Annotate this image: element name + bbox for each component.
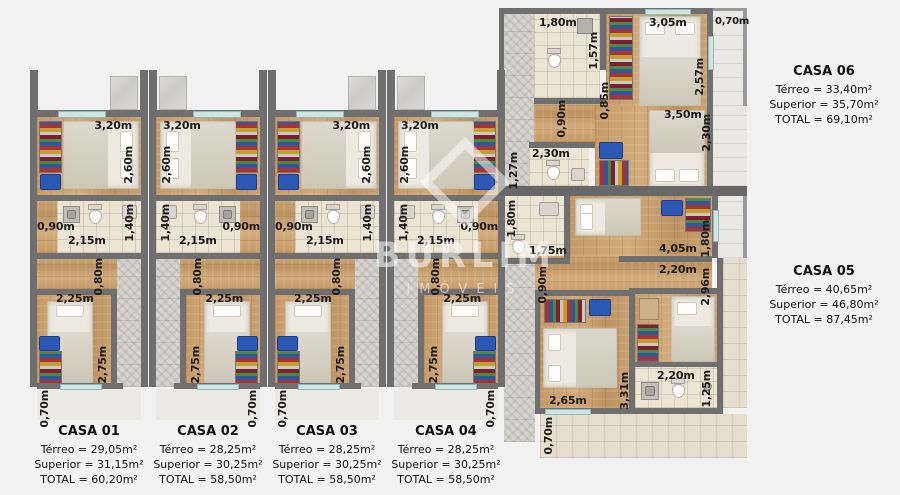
pillow xyxy=(677,302,697,315)
porch-floor xyxy=(394,389,498,420)
wardrobe xyxy=(39,351,62,385)
toilet xyxy=(326,204,340,224)
dim-bath-width: 2,15m xyxy=(306,234,344,247)
balcony-rail xyxy=(713,8,747,11)
casa-05-terreo: Térreo = 40,65m² xyxy=(750,282,898,297)
unit-superior: Superior = 30,25m² xyxy=(377,457,515,472)
dim-bedroom-depth: 2,60m xyxy=(398,146,411,184)
toilet xyxy=(193,204,207,224)
dim-bath-width: 2,15m xyxy=(68,234,106,247)
dim-hall-width: 0,80m xyxy=(330,258,343,296)
dim-bedroom1-depth: 2,57m xyxy=(693,58,706,96)
casa-06-terreo: Térreo = 33,40m² xyxy=(750,82,898,97)
unit-info: CASA 02 Térreo = 28,25m² Superior = 30,2… xyxy=(139,424,277,487)
toilet xyxy=(546,160,560,180)
wardrobe xyxy=(277,121,300,173)
dim-porch-depth: 0,70m xyxy=(484,390,497,428)
dim-bedroom2-width: 2,25m xyxy=(443,292,481,305)
wall xyxy=(37,253,141,259)
dim-bath-depth: 1,40m xyxy=(361,204,374,242)
wall xyxy=(349,289,355,387)
wardrobe xyxy=(544,299,586,323)
wall xyxy=(149,108,156,387)
casa-05-plan: 1,80m 1,75m 0,90m 4,05m 1,80m 2,20m 2,96… xyxy=(499,196,747,458)
dim-bath1-depth: 1,57m xyxy=(587,32,600,70)
wall xyxy=(499,186,747,196)
dim-hall-depth: 0,85m xyxy=(598,82,611,120)
dim-bedroom2-width: 3,50m xyxy=(664,108,702,121)
balcony-slab xyxy=(159,76,187,110)
pillow xyxy=(451,305,479,317)
window xyxy=(435,384,477,390)
exterior-paving xyxy=(117,259,141,387)
dim-bath-depth: 1,40m xyxy=(123,204,136,242)
unit-terreo: Térreo = 28,25m² xyxy=(258,442,396,457)
dim-bedroom-width: 3,20m xyxy=(332,119,370,132)
wall xyxy=(535,290,540,414)
pillow xyxy=(294,305,322,317)
unit-superior: Superior = 30,25m² xyxy=(258,457,396,472)
wall xyxy=(499,8,504,186)
unit-name: CASA 02 xyxy=(139,424,277,439)
dim-bedroom2-depth: 2,75m xyxy=(427,346,440,384)
casa-06-info: CASA 06 Térreo = 33,40m² Superior = 35,7… xyxy=(750,64,898,127)
dim-bedroom-width: 3,20m xyxy=(401,119,439,132)
exterior-paving xyxy=(355,259,379,387)
wall xyxy=(387,108,394,387)
terrace-tiles xyxy=(540,414,747,458)
dim-side-depth: 2,96m xyxy=(699,268,712,306)
unit-info: CASA 04 Térreo = 28,25m² Superior = 30,2… xyxy=(377,424,515,487)
desk xyxy=(639,298,659,320)
dim-entry-width: 0,90m xyxy=(37,220,75,233)
wall xyxy=(499,196,504,311)
dim-bath-depth: 1,40m xyxy=(397,204,410,242)
dim-hall-width: 0,80m xyxy=(92,258,105,296)
dim-bath-depth: 1,40m xyxy=(159,204,172,242)
wall xyxy=(275,195,379,201)
window xyxy=(197,384,239,390)
dresser xyxy=(474,174,495,190)
dim-bath1-width: 1,80m xyxy=(539,16,577,29)
unit-total: TOTAL = 58,50m² xyxy=(258,472,396,487)
dim-entry-width: 0,90m xyxy=(460,220,498,233)
unit-info: CASA 03 Térreo = 28,25m² Superior = 30,2… xyxy=(258,424,396,487)
window xyxy=(58,111,106,118)
dim-bath2-depth: 1,27m xyxy=(507,152,520,190)
unit-plan: 3,20m 2,60m 0,90m 1,40m 2,15m 0,80m xyxy=(387,70,505,420)
dim-bath2-depth: 1,25m xyxy=(700,370,713,408)
unit-total: TOTAL = 60,20m² xyxy=(20,472,158,487)
dresser xyxy=(475,336,496,351)
window xyxy=(298,384,340,390)
exterior-paving xyxy=(394,259,418,387)
dim-bath-width: 2,15m xyxy=(417,234,455,247)
dim-bedroom2-depth: 2,75m xyxy=(96,346,109,384)
dim-porch-depth: 0,70m xyxy=(38,390,51,428)
unit-plan: 3,20m 2,60m 0,90m 1,40m 2,15m 0,80m xyxy=(149,70,267,420)
wardrobe xyxy=(473,351,496,385)
wall xyxy=(111,289,117,387)
dim-bedroom-width: 3,20m xyxy=(94,119,132,132)
dim-balcony-width: 0,70m xyxy=(715,16,749,27)
wall xyxy=(418,289,424,387)
pillow xyxy=(655,169,675,182)
pillow xyxy=(213,305,241,317)
wall xyxy=(156,195,260,201)
dresser xyxy=(599,142,623,159)
wall xyxy=(268,108,275,387)
pillow xyxy=(679,169,699,182)
dim-hall-width: 0,80m xyxy=(429,258,442,296)
casa-05-info: CASA 05 Térreo = 40,65m² Superior = 46,8… xyxy=(750,264,898,327)
window xyxy=(296,111,344,118)
wardrobe xyxy=(235,351,258,385)
wall xyxy=(37,195,141,201)
blanket xyxy=(576,329,616,387)
wardrobe xyxy=(39,121,62,173)
casa-06-plan: 1,80m 1,57m 0,85m 0,90m 2,30m 1,27m 3,05… xyxy=(499,8,747,186)
casa-04-plan-group: 3,20m 2,60m 0,90m 1,40m 2,15m 0,80m xyxy=(387,70,505,470)
porch-floor xyxy=(156,389,260,420)
dim-entry-width: 0,90m xyxy=(222,220,260,233)
dim-bedroom-depth: 2,60m xyxy=(122,146,135,184)
pillow xyxy=(548,334,561,351)
wall xyxy=(717,258,723,408)
dim-bedroom2-depth: 2,75m xyxy=(334,346,347,384)
toilet xyxy=(431,204,445,224)
floorplan-canvas: 3,20m 2,60m 0,90m 1,40m 2,15m 0,80m xyxy=(0,0,900,495)
wardrobe xyxy=(235,121,258,173)
casa-05-total: TOTAL = 87,45m² xyxy=(750,312,898,327)
unit-plan: 3,20m 2,60m 0,90m 1,40m 2,15m 0,80m xyxy=(30,70,148,420)
dim-bath-width: 2,15m xyxy=(179,234,217,247)
unit-name: CASA 04 xyxy=(377,424,515,439)
dim-bedroom1-width: 3,05m xyxy=(649,16,687,29)
dim-bedroom2-depth: 3,31m xyxy=(618,372,631,410)
dim-bedroom-depth: 2,60m xyxy=(360,146,373,184)
wall xyxy=(30,108,37,387)
terrace-tiles xyxy=(723,258,747,408)
wardrobe xyxy=(599,160,629,186)
exterior-paving xyxy=(156,259,180,387)
wall xyxy=(180,289,186,387)
unit-total: TOTAL = 58,50m² xyxy=(377,472,515,487)
dresser xyxy=(39,336,60,351)
dresser xyxy=(40,174,61,190)
dresser xyxy=(589,299,611,316)
dim-porch-depth: 0,70m xyxy=(246,390,259,428)
wall xyxy=(141,108,148,387)
porch-floor xyxy=(37,389,141,420)
casa-06-name: CASA 06 xyxy=(750,64,898,79)
dim-hall-depth: 0,90m xyxy=(536,266,549,304)
dim-bedroom2-width: 2,25m xyxy=(205,292,243,305)
unit-terreo: Térreo = 29,05m² xyxy=(20,442,158,457)
blanket xyxy=(605,199,640,235)
dresser xyxy=(278,174,299,190)
window xyxy=(645,9,691,15)
wall xyxy=(275,253,379,259)
balcony-slab xyxy=(397,76,425,110)
balcony-slab xyxy=(110,76,138,110)
wall xyxy=(394,253,498,259)
casa-06-superior: Superior = 35,70m² xyxy=(750,97,898,112)
unit-superior: Superior = 30,25m² xyxy=(139,457,277,472)
toilet xyxy=(88,204,102,224)
dresser xyxy=(661,200,683,216)
dim-bedroom2-depth: 2,75m xyxy=(189,346,202,384)
dresser xyxy=(237,336,258,351)
blanket xyxy=(640,57,700,105)
window xyxy=(713,210,719,242)
balcony-floor xyxy=(718,196,743,258)
window xyxy=(60,384,102,390)
dim-bath1-width: 1,75m xyxy=(529,244,567,257)
wall xyxy=(260,108,267,387)
wardrobe xyxy=(637,324,659,362)
balcony-slab xyxy=(348,76,376,110)
dim-bath2-width: 2,30m xyxy=(532,147,570,160)
dresser xyxy=(277,336,298,351)
wall xyxy=(504,258,570,264)
wall xyxy=(635,362,723,367)
wall xyxy=(156,253,260,259)
unit-info: CASA 01 Térreo = 29,05m² Superior = 31,1… xyxy=(20,424,158,487)
wall xyxy=(534,98,606,104)
unit-plan: 3,20m 2,60m 0,90m 1,40m 2,15m 0,80m xyxy=(268,70,386,420)
unit-terreo: Térreo = 28,25m² xyxy=(377,442,515,457)
unit-total: TOTAL = 58,50m² xyxy=(139,472,277,487)
pillow xyxy=(580,213,593,230)
dim-bedroom2-width: 2,25m xyxy=(56,292,94,305)
balcony-rail xyxy=(743,196,747,258)
dim-bath1-depth: 1,80m xyxy=(505,200,518,238)
dim-entry-width: 0,90m xyxy=(275,220,313,233)
double-bed xyxy=(543,328,617,388)
double-bed xyxy=(639,16,701,106)
wall xyxy=(394,195,498,201)
balcony-floor xyxy=(713,106,747,186)
toilet xyxy=(547,48,561,68)
sink xyxy=(539,202,559,216)
dim-bedroom-width: 3,20m xyxy=(163,119,201,132)
wall xyxy=(600,14,606,70)
single-bed xyxy=(575,198,641,236)
window xyxy=(431,111,479,118)
dim-hall-width: 0,80m xyxy=(191,258,204,296)
casa-05-name: CASA 05 xyxy=(750,264,898,279)
dim-bedroom-depth: 2,60m xyxy=(160,146,173,184)
dim-bath2-width: 2,20m xyxy=(657,369,695,382)
window xyxy=(193,111,241,118)
dim-hall-width: 2,20m xyxy=(659,263,697,276)
wall xyxy=(635,408,723,414)
dim-hall2-depth: 0,90m xyxy=(555,100,568,138)
unit-superior: Superior = 31,15m² xyxy=(20,457,158,472)
unit-terreo: Térreo = 28,25m² xyxy=(139,442,277,457)
double-bed xyxy=(649,110,705,188)
dim-bedroom2-width: 2,65m xyxy=(549,394,587,407)
wardrobe xyxy=(473,121,496,173)
dim-bedroom1-width: 4,05m xyxy=(659,242,697,255)
porch-floor xyxy=(275,389,379,420)
wardrobe xyxy=(277,351,300,385)
dresser xyxy=(236,174,257,190)
wardrobe xyxy=(609,16,633,100)
washing-machine xyxy=(641,382,659,400)
casa-06-total: TOTAL = 69,10m² xyxy=(750,112,898,127)
single-bed xyxy=(671,296,715,362)
window xyxy=(708,36,714,70)
dim-porch-depth: 0,70m xyxy=(542,417,555,455)
window xyxy=(545,409,591,415)
casa-05-superior: Superior = 46,80m² xyxy=(750,297,898,312)
dim-bedroom2-width: 2,25m xyxy=(294,292,332,305)
exterior-paving xyxy=(504,264,535,442)
unit-name: CASA 01 xyxy=(20,424,158,439)
wall xyxy=(535,290,634,296)
casa-01-plan-group: 3,20m 2,60m 0,90m 1,40m 2,15m 0,80m xyxy=(30,70,148,470)
dim-bedroom1-depth: 1,80m xyxy=(699,220,712,258)
pillow xyxy=(56,305,84,317)
dim-porch-depth: 0,70m xyxy=(276,390,289,428)
casa-03-plan-group: 3,20m 2,60m 0,90m 1,40m 2,15m 0,80m xyxy=(268,70,386,470)
dim-bedroom2-depth: 2,30m xyxy=(700,114,713,152)
wall xyxy=(379,108,386,387)
sink xyxy=(571,168,585,181)
unit-name: CASA 03 xyxy=(258,424,396,439)
blanket xyxy=(672,326,714,361)
pillow xyxy=(548,365,561,382)
casa-02-plan-group: 3,20m 2,60m 0,90m 1,40m 2,15m 0,80m xyxy=(149,70,267,470)
